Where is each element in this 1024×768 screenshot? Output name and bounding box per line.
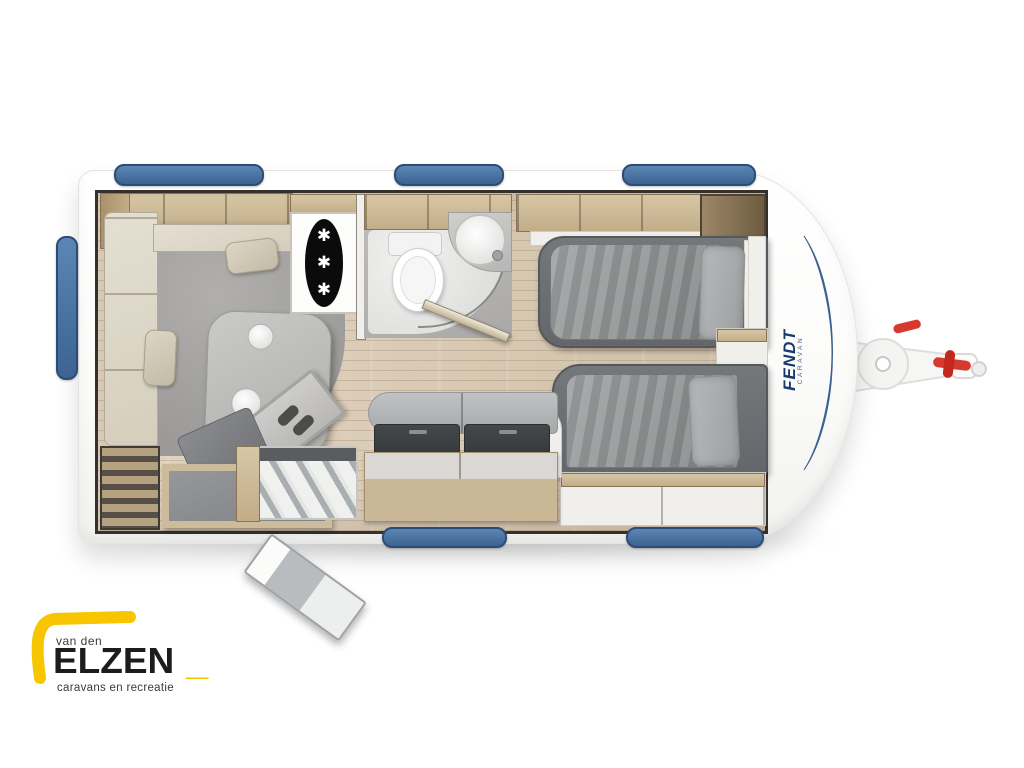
faucet xyxy=(492,250,503,261)
logo-subtitle: caravans en recreatie xyxy=(57,682,174,694)
nose-accent-stripe xyxy=(800,230,862,476)
window-top-rear xyxy=(114,164,264,186)
table-mount xyxy=(247,323,274,350)
sideboard xyxy=(364,452,558,522)
bed-foot-cabinet xyxy=(560,472,766,526)
brand-name: FENDT xyxy=(782,329,797,391)
window-bottom-front xyxy=(626,527,764,548)
tow-hitch xyxy=(845,312,995,422)
bathroom-sink xyxy=(454,214,506,266)
fridge-freezer: ✱ ✱ ✱ xyxy=(290,212,358,314)
toilet xyxy=(392,248,444,312)
brand-subname: CARAVAN xyxy=(797,329,804,391)
bed-top-pillow xyxy=(698,245,745,340)
lounge-sofa-left xyxy=(104,212,158,446)
logo-underscore-mark: _ xyxy=(186,648,208,674)
snowflake-icon: ✱ xyxy=(317,226,331,246)
window-top-middle xyxy=(394,164,504,186)
sideboard-seam xyxy=(459,453,461,479)
window-top-front xyxy=(622,164,756,186)
red-lever xyxy=(892,319,921,335)
cabinet-above-fridge xyxy=(290,194,360,214)
logo-name: ELZEN xyxy=(53,640,174,681)
between-beds-cabinet-top xyxy=(717,329,767,342)
floorplan-image: FENDT CARAVAN ✱ ✱ ✱ xyxy=(0,0,1024,768)
window-bottom-middle xyxy=(382,527,507,548)
lounge-pillow-left xyxy=(143,329,178,387)
cabinet-beside-door xyxy=(236,446,260,522)
bed-foot-cabinet-top xyxy=(561,473,765,487)
dealer-logo: van den ELZEN _ caravans en recreatie xyxy=(30,608,230,708)
front-corner-cabinet xyxy=(700,194,766,238)
freezer-badge: ✱ ✱ ✱ xyxy=(305,219,343,307)
snowflake-icon: ✱ xyxy=(317,280,331,300)
drawer-handle xyxy=(499,430,517,434)
window-rear-side xyxy=(56,236,78,380)
drawer-handle xyxy=(409,430,427,434)
brand-lettering: FENDT CARAVAN xyxy=(782,329,804,391)
snowflake-icon: ✱ xyxy=(317,253,331,273)
entry-step-unit xyxy=(258,446,358,520)
hitch-tip xyxy=(972,362,986,376)
bed-top-duvet xyxy=(550,244,722,340)
lounge-pillow-top xyxy=(224,237,280,275)
rear-storage-shelves xyxy=(100,446,160,530)
toilet-seat xyxy=(400,256,436,304)
bed-bottom-pillow xyxy=(688,375,741,467)
